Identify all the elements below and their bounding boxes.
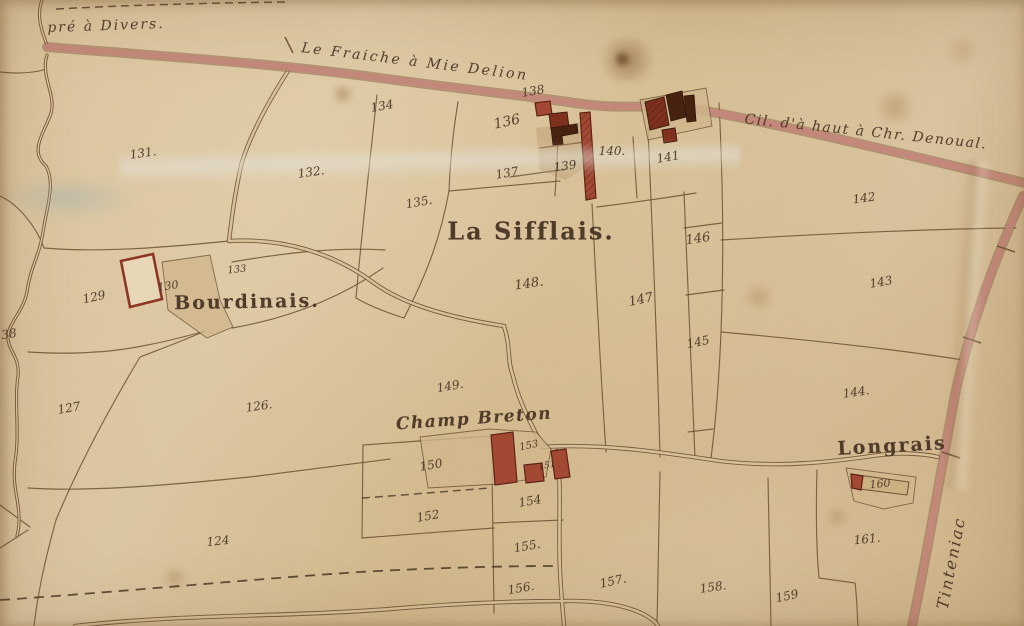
cadastral-map: pré à Divers.Le Fraiche à Mie DelionCil.… xyxy=(0,0,1024,626)
map-canvas xyxy=(0,0,1024,626)
paper-texture xyxy=(0,0,1024,626)
